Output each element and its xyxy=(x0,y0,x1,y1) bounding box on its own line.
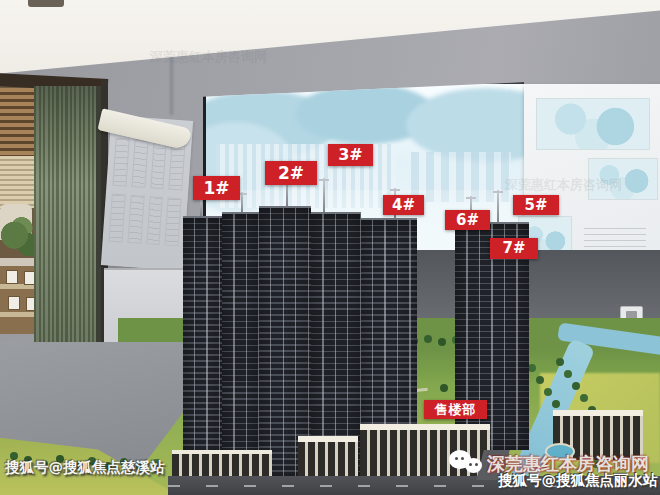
tower-tag-4: 4# xyxy=(383,195,424,215)
watermark-bottom-left: 搜狐号@搜狐焦点慈溪站 xyxy=(5,458,165,477)
rooftop-spire xyxy=(497,190,499,222)
wechat-icon xyxy=(449,448,489,480)
green-slat-partition xyxy=(34,86,101,366)
certificate-card xyxy=(112,138,129,187)
watermark-sohu-account: 搜狐号@搜狐焦点丽水站 xyxy=(498,471,658,490)
ceiling-vent xyxy=(28,0,64,7)
model-tower-1b xyxy=(222,212,259,472)
site-plan-sketch xyxy=(536,98,650,150)
tower-tag-6: 6# xyxy=(445,210,490,230)
framed-item xyxy=(6,270,18,284)
certificate-card xyxy=(146,196,163,245)
window-blinds xyxy=(0,156,34,208)
tower-tag-3: 3# xyxy=(328,144,373,166)
presentation-board xyxy=(524,84,660,266)
wood-slat-wall xyxy=(0,88,38,156)
tower-tag-1: 1# xyxy=(193,176,240,200)
tower-tag-2: 2# xyxy=(265,161,317,185)
certificate-card xyxy=(127,195,144,244)
certificate-card xyxy=(131,139,148,188)
certificate-card xyxy=(150,140,167,189)
rooftop-spire xyxy=(241,192,243,212)
sales-office-tag: 售楼部 xyxy=(424,400,487,419)
tower-tag-5: 5# xyxy=(513,195,559,215)
certificate-card xyxy=(109,194,126,243)
certificate-card xyxy=(165,197,182,246)
ghost-watermark: 深莞惠红本房咨询网 xyxy=(150,48,267,66)
rooftop-spire xyxy=(323,178,325,212)
certificate-cards xyxy=(107,138,185,263)
tower-tag-7: 7# xyxy=(490,238,538,259)
framed-item xyxy=(8,296,20,310)
certificate-card xyxy=(169,142,186,191)
retail-podium xyxy=(298,436,358,478)
ghost-watermark: 深莞惠红本房咨询网 xyxy=(505,176,622,194)
model-tower-1 xyxy=(183,216,222,470)
